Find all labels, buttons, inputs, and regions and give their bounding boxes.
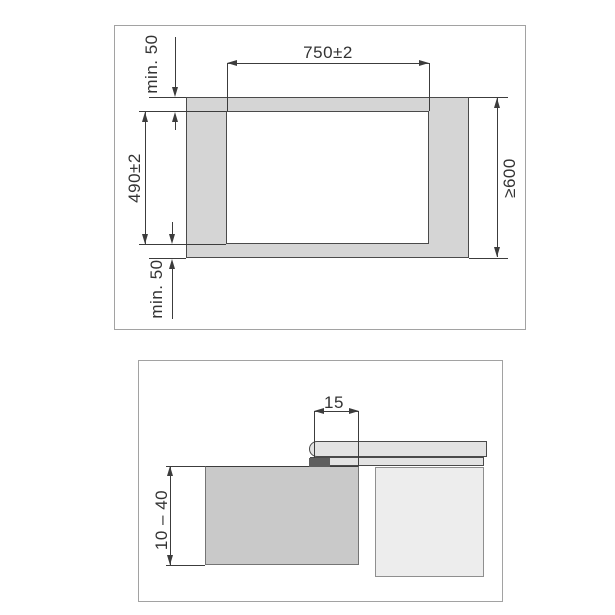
arrowhead-up-icon: [169, 259, 175, 269]
arrowhead-up-icon: [167, 466, 173, 476]
label-worktop-depth: ≥600: [500, 158, 520, 198]
dim-tail-rear-clearance: [175, 122, 176, 130]
arrowhead-up-icon: [142, 112, 148, 122]
top-view-panel: 750±2 min. 50 490±2 min. 50 ≥600: [114, 25, 526, 330]
ext-line-cutout-top: [139, 111, 226, 112]
ext-line-worktop-top-right: [469, 97, 508, 98]
seal-gasket: [309, 458, 330, 467]
ext-line-glass-edge: [314, 411, 315, 458]
cooktop-glass: [309, 441, 487, 457]
label-cutout-width: 750±2: [303, 43, 353, 63]
dim-line-rear-clearance: [175, 37, 176, 89]
arrowhead-down-icon: [167, 555, 173, 565]
arrowhead-up-icon: [172, 112, 178, 122]
cooktop-frame-band: [310, 457, 484, 466]
cooktop-housing: [375, 467, 484, 577]
dim-line-worktop-depth: [497, 98, 498, 257]
label-cutout-depth: 490±2: [125, 153, 145, 203]
label-rear-clearance: min. 50: [142, 34, 162, 93]
arrowhead-left-icon: [314, 408, 324, 414]
arrowhead-down-icon: [494, 247, 500, 257]
dim-line-front-clearance: [172, 269, 173, 319]
ext-line-worktop-top: [149, 97, 186, 98]
arrowhead-left-icon: [227, 60, 237, 66]
section-view-panel: 15 10 – 40: [138, 360, 503, 602]
arrowhead-down-icon: [169, 234, 175, 244]
ext-line-worktop-underside: [166, 565, 205, 566]
worktop-section: [205, 466, 359, 565]
dim-line-cutout-width: [227, 63, 429, 64]
dim-tail-front-clearance-top: [172, 222, 173, 234]
label-overlap: 15: [324, 393, 344, 413]
arrowhead-down-icon: [172, 87, 178, 97]
ext-line-cutout-left: [227, 63, 228, 111]
ext-line-cutout-right: [429, 63, 430, 111]
label-front-clearance: min. 50: [147, 259, 167, 318]
ext-line-worktop-bottom-right: [469, 258, 508, 259]
cutout-opening: [226, 111, 429, 244]
ext-line-cutout-bottom: [139, 244, 226, 245]
installation-diagram-page: { "figure": { "background": "#ffffff", "…: [0, 0, 615, 615]
arrowhead-right-icon: [419, 60, 429, 66]
ext-line-cutout-edge: [358, 411, 359, 466]
arrowhead-up-icon: [494, 98, 500, 108]
label-worktop-thickness: 10 – 40: [152, 490, 172, 550]
dim-line-cutout-depth: [145, 112, 146, 244]
arrowhead-down-icon: [142, 234, 148, 244]
